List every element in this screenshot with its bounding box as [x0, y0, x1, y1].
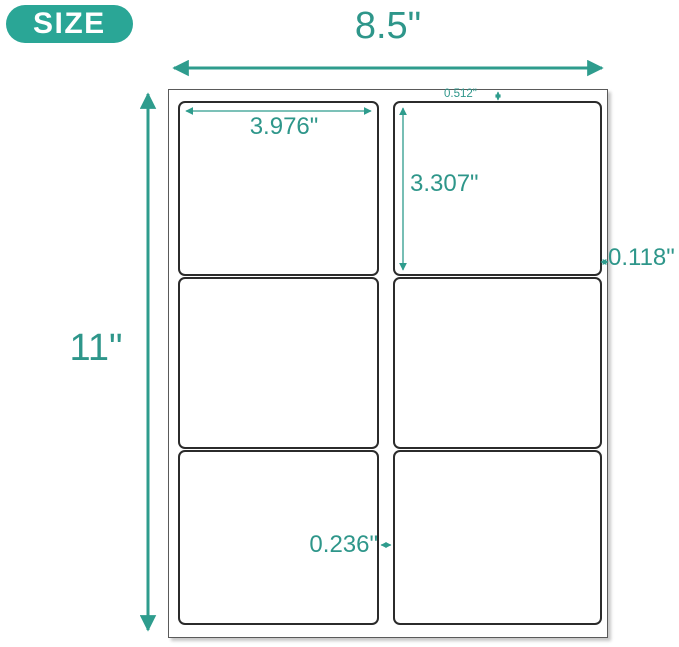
sheet-height-label: 11" — [58, 329, 134, 369]
size-badge: SIZE — [6, 5, 133, 43]
label-cell-4 — [393, 277, 602, 449]
column-gap-label: 0.236" — [290, 532, 378, 557]
label-sheet — [168, 89, 608, 638]
top-margin-label: 0.512" — [444, 88, 477, 100]
size-diagram: SIZE 8.5" 11" 3.976" 3.30 — [0, 0, 679, 647]
sheet-width-label: 8.5" — [340, 7, 436, 47]
label-width-label: 3.976" — [234, 114, 334, 139]
side-margin-label: 0.118" — [608, 245, 675, 270]
label-height-label: 3.307" — [410, 171, 479, 196]
label-cell-3 — [178, 277, 379, 449]
label-cell-6 — [393, 450, 602, 625]
